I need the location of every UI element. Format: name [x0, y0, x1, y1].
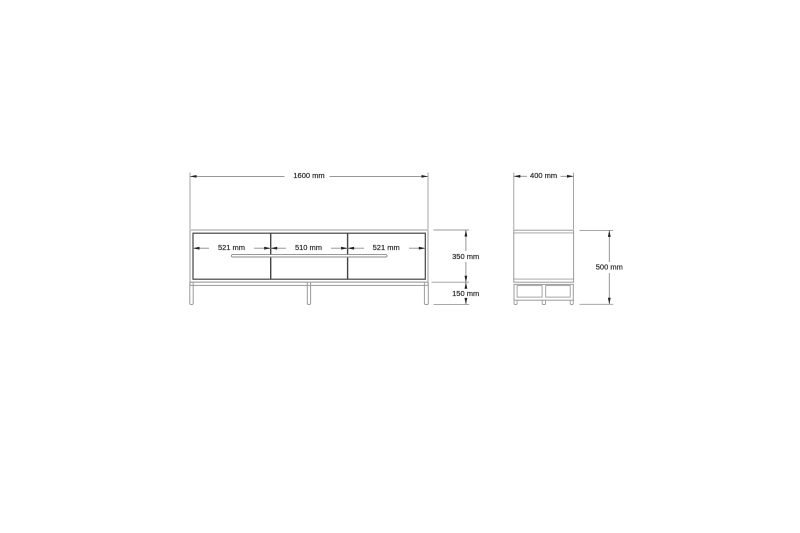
svg-text:400 mm: 400 mm	[530, 171, 557, 180]
svg-text:1600 mm: 1600 mm	[293, 171, 324, 180]
svg-text:510 mm: 510 mm	[295, 243, 322, 252]
svg-text:521 mm: 521 mm	[373, 243, 400, 252]
svg-text:521 mm: 521 mm	[218, 243, 245, 252]
svg-text:350 mm: 350 mm	[452, 252, 479, 261]
svg-text:150 mm: 150 mm	[452, 289, 479, 298]
svg-text:500 mm: 500 mm	[596, 263, 623, 272]
